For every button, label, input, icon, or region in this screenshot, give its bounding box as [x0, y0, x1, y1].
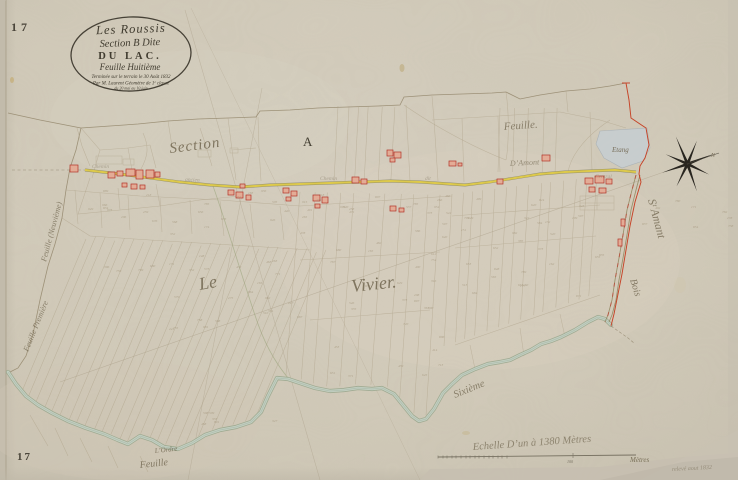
svg-text:316: 316 — [431, 279, 437, 283]
svg-text:385: 385 — [518, 239, 524, 243]
svg-text:151: 151 — [461, 228, 467, 232]
svg-text:322: 322 — [524, 216, 530, 220]
svg-text:162: 162 — [549, 262, 555, 266]
svg-text:949: 949 — [88, 207, 94, 211]
svg-text:dit: dit — [425, 176, 431, 182]
svg-text:171: 171 — [691, 205, 697, 209]
svg-text:371: 371 — [348, 374, 354, 378]
svg-text:Central: Central — [595, 174, 612, 180]
svg-text:343: 343 — [579, 204, 585, 208]
svg-text:785: 785 — [413, 202, 419, 206]
svg-text:651: 651 — [330, 371, 336, 375]
svg-text:982: 982 — [265, 296, 271, 300]
svg-text:782: 782 — [722, 210, 728, 214]
svg-text:148: 148 — [199, 254, 205, 258]
svg-text:Feuille Huitième: Feuille Huitième — [99, 62, 161, 72]
svg-text:645: 645 — [422, 373, 428, 377]
svg-text:400: 400 — [415, 265, 421, 269]
svg-text:780: 780 — [675, 199, 681, 203]
svg-text:17: 17 — [17, 451, 32, 463]
svg-text:655: 655 — [595, 255, 601, 259]
svg-text:458: 458 — [201, 422, 207, 426]
svg-text:915: 915 — [302, 200, 308, 204]
svg-text:208: 208 — [414, 293, 420, 297]
svg-text:DU LAC.: DU LAC. — [98, 51, 162, 62]
svg-text:676: 676 — [152, 219, 158, 223]
svg-text:505: 505 — [272, 200, 278, 204]
svg-text:684: 684 — [472, 291, 478, 295]
svg-text:Section B Dite: Section B Dite — [99, 37, 160, 50]
svg-text:864: 864 — [248, 290, 254, 294]
svg-text:754: 754 — [431, 258, 437, 262]
svg-text:522: 522 — [446, 211, 452, 215]
svg-text:936: 936 — [261, 189, 267, 193]
svg-text:513: 513 — [462, 283, 468, 287]
svg-text:508: 508 — [203, 411, 209, 415]
svg-text:854: 854 — [693, 225, 699, 229]
svg-text:565: 565 — [491, 275, 497, 279]
svg-text:785: 785 — [204, 202, 210, 206]
svg-text:A: A — [303, 134, 313, 149]
svg-text:373: 373 — [402, 298, 408, 302]
svg-text:Etang: Etang — [611, 146, 629, 154]
svg-text:499: 499 — [476, 197, 482, 201]
svg-text:D’Amont: D’Amont — [509, 157, 541, 168]
svg-text:263: 263 — [272, 259, 278, 263]
svg-text:217: 217 — [288, 301, 294, 305]
svg-text:Les Roussis: Les Roussis — [95, 21, 166, 37]
svg-text:205: 205 — [316, 198, 322, 202]
svg-text:Feuille.: Feuille. — [502, 119, 538, 133]
svg-text:597: 597 — [442, 222, 448, 226]
svg-text:265: 265 — [302, 215, 308, 219]
svg-text:640: 640 — [442, 235, 448, 239]
svg-text:720: 720 — [403, 322, 409, 326]
svg-text:586: 586 — [415, 229, 421, 233]
svg-text:Chemin: Chemin — [92, 164, 109, 170]
svg-text:318: 318 — [319, 193, 325, 197]
svg-text:806: 806 — [439, 335, 445, 339]
svg-text:482: 482 — [376, 241, 382, 245]
svg-text:750: 750 — [116, 269, 122, 273]
svg-text:478: 478 — [300, 231, 306, 235]
svg-text:758: 758 — [197, 318, 203, 322]
svg-text:327: 327 — [272, 419, 278, 423]
svg-text:508: 508 — [215, 319, 221, 323]
svg-text:709: 709 — [464, 216, 470, 220]
svg-text:396: 396 — [104, 265, 110, 269]
svg-text:165: 165 — [257, 281, 263, 285]
svg-text:160: 160 — [523, 283, 529, 287]
svg-text:738: 738 — [728, 224, 734, 228]
svg-text:466: 466 — [445, 194, 451, 198]
svg-text:266: 266 — [437, 198, 443, 202]
svg-text:787: 787 — [330, 260, 336, 264]
svg-text:Terminée sur le terrain le 30: Terminée sur le terrain le 30 Août 1832 — [91, 75, 171, 80]
svg-text:824: 824 — [539, 198, 545, 202]
svg-text:771: 771 — [275, 272, 281, 276]
svg-text:Chemin: Chemin — [320, 176, 337, 182]
svg-text:680: 680 — [336, 248, 342, 252]
svg-text:ancien: ancien — [185, 177, 200, 184]
svg-text:871: 871 — [576, 294, 582, 298]
svg-text:537: 537 — [406, 205, 412, 209]
svg-text:241: 241 — [169, 327, 175, 331]
svg-text:259: 259 — [143, 210, 149, 214]
svg-text:690: 690 — [428, 306, 434, 310]
svg-text:926: 926 — [270, 218, 276, 222]
svg-text:891: 891 — [214, 420, 220, 424]
svg-text:973: 973 — [538, 247, 544, 251]
svg-text:897: 897 — [414, 299, 420, 303]
svg-text:973: 973 — [107, 208, 113, 212]
svg-text:573: 573 — [204, 267, 210, 271]
svg-text:100: 100 — [567, 459, 573, 464]
svg-text:995: 995 — [340, 205, 346, 209]
svg-text:799: 799 — [138, 268, 144, 272]
svg-text:713: 713 — [438, 363, 444, 367]
svg-text:620: 620 — [531, 203, 537, 207]
svg-text:218: 218 — [146, 193, 152, 197]
svg-text:789: 789 — [521, 270, 527, 274]
svg-text:612: 612 — [431, 252, 437, 256]
svg-text:183: 183 — [248, 191, 254, 195]
svg-text:987: 987 — [297, 315, 303, 319]
svg-text:352: 352 — [189, 268, 195, 272]
svg-text:889: 889 — [103, 189, 109, 193]
svg-text:653: 653 — [466, 262, 472, 266]
svg-text:635: 635 — [221, 217, 227, 221]
svg-text:982: 982 — [512, 231, 518, 235]
svg-text:373: 373 — [427, 211, 433, 215]
svg-text:Le: Le — [196, 271, 218, 294]
svg-text:966: 966 — [102, 203, 108, 207]
svg-text:278: 278 — [727, 216, 733, 220]
svg-text:174: 174 — [204, 225, 210, 229]
svg-text:171: 171 — [169, 262, 175, 266]
svg-text:352: 352 — [170, 232, 176, 236]
svg-text:568: 568 — [172, 220, 178, 224]
svg-text:414: 414 — [432, 348, 438, 352]
svg-text:463: 463 — [266, 260, 272, 264]
svg-text:584: 584 — [537, 221, 543, 225]
svg-text:432: 432 — [236, 265, 242, 269]
svg-text:335: 335 — [351, 307, 357, 311]
svg-text:165: 165 — [368, 249, 374, 253]
svg-text:440: 440 — [284, 209, 290, 213]
svg-text:629: 629 — [397, 281, 403, 285]
svg-text:837: 837 — [642, 222, 648, 226]
svg-text:656: 656 — [198, 210, 204, 214]
svg-text:199: 199 — [572, 216, 578, 220]
svg-text:453: 453 — [334, 345, 340, 349]
svg-text:Mètres: Mètres — [629, 456, 649, 464]
svg-text:546: 546 — [349, 301, 355, 305]
svg-text:579: 579 — [174, 295, 180, 299]
svg-text:848: 848 — [494, 267, 500, 271]
svg-text:439: 439 — [398, 364, 404, 368]
svg-text:597: 597 — [578, 214, 584, 218]
svg-text:680: 680 — [150, 264, 156, 268]
svg-text:491: 491 — [307, 208, 313, 212]
svg-text:206: 206 — [121, 215, 127, 219]
svg-text:954: 954 — [434, 205, 440, 209]
svg-text:132: 132 — [545, 220, 551, 224]
svg-text:807: 807 — [375, 195, 381, 199]
svg-text:457: 457 — [236, 195, 242, 199]
svg-text:509: 509 — [209, 411, 215, 415]
svg-text:258: 258 — [349, 207, 355, 211]
svg-text:981: 981 — [203, 325, 209, 329]
svg-text:17: 17 — [11, 20, 31, 34]
svg-text:334: 334 — [268, 309, 274, 313]
svg-text:652: 652 — [493, 246, 499, 250]
svg-text:du 20 mai au 10 juin: du 20 mai au 10 juin — [114, 86, 147, 91]
svg-text:520: 520 — [550, 232, 556, 236]
svg-text:275: 275 — [228, 296, 234, 300]
svg-text:510: 510 — [263, 311, 269, 315]
